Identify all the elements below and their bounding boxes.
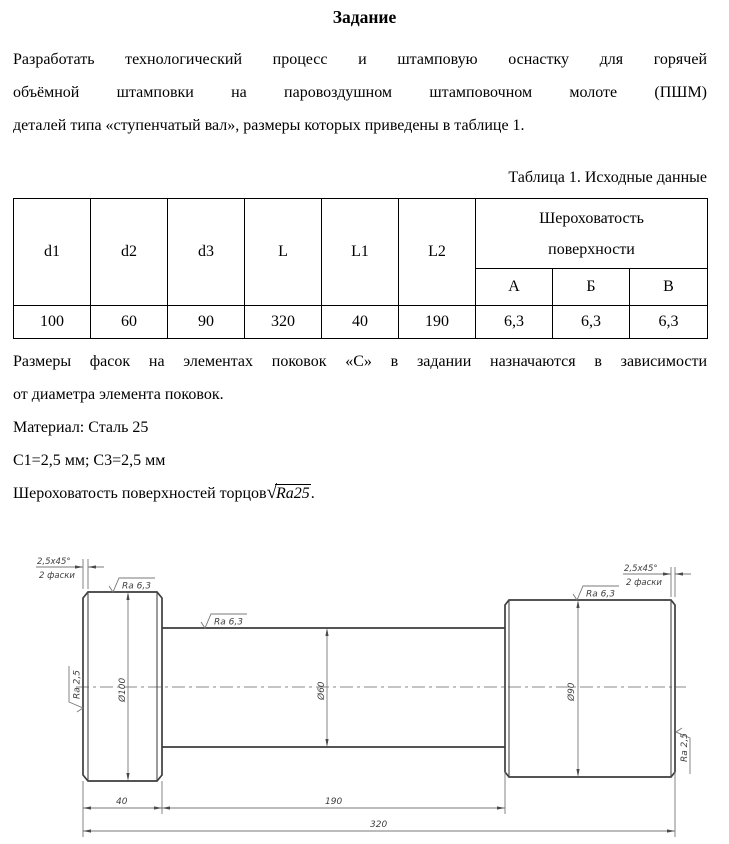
roughness-mark-ra63: Ra 6,3 — [109, 578, 155, 592]
input-data-table: d1 d2 d3 L L1 L2 Шероховатость поверхнос… — [13, 198, 708, 339]
document-page: Задание Разработать технологический проц… — [0, 0, 729, 844]
sub-header-V: В — [630, 269, 708, 306]
intro-line: Разработать технологический процесс и шт… — [13, 43, 707, 76]
value-L: 320 — [245, 306, 322, 339]
roughness-formula: Шероховатость поверхностей торцов√Ra25. — [13, 477, 713, 510]
page-title: Задание — [0, 6, 729, 28]
value-ra-v: 6,3 — [630, 306, 708, 339]
table-caption: Таблица 1. Исходные данные — [13, 167, 707, 189]
dim-diameter-d1: Ø100 — [117, 592, 130, 781]
svg-text:40: 40 — [116, 797, 128, 807]
sub-header-A: А — [476, 269, 553, 306]
intro-line: деталей типа «ступенчатый вал», размеры … — [13, 109, 707, 142]
svg-text:Ø90: Ø90 — [566, 682, 577, 702]
chamfer-note: Размеры фасок на элементах поковок «С» в… — [13, 345, 707, 378]
dim-length-total: 320 — [83, 820, 675, 833]
dim-diameter-d2: Ø60 — [316, 628, 329, 747]
notes-block: Размеры фасок на элементах поковок «С» в… — [13, 345, 713, 510]
col-header-L2: L2 — [399, 199, 476, 306]
material-note: Материал: Сталь 25 — [13, 411, 713, 444]
shaft-outline — [83, 592, 675, 781]
svg-text:2 фаски: 2 фаски — [626, 578, 662, 588]
value-ra-b: 6,3 — [553, 306, 630, 339]
chamfer-values-note: С1=2,5 мм; С3=2,5 мм — [13, 444, 713, 477]
intro-paragraph: Разработать технологический процесс и шт… — [13, 43, 707, 142]
col-header-d2: d2 — [91, 199, 168, 306]
dim-diameter-d3: Ø90 — [566, 600, 580, 777]
col-header-L: L — [245, 199, 322, 306]
svg-text:Ra 6,3: Ra 6,3 — [122, 582, 151, 592]
sub-header-B: Б — [553, 269, 630, 306]
value-d3: 90 — [168, 306, 245, 339]
svg-text:Ø100: Ø100 — [117, 677, 128, 703]
radicand: Ra25 — [275, 484, 311, 502]
svg-text:Ra 2,5: Ra 2,5 — [680, 733, 690, 762]
table-row: 100 60 90 320 40 190 6,3 6,3 6,3 — [14, 306, 708, 339]
dim-length-l2: 190 — [162, 797, 505, 810]
intro-line: объёмной штамповки на паровоздушном штам… — [13, 76, 707, 109]
roughness-mark-ra25-left: Ra 2,5 — [69, 666, 83, 712]
value-L2: 190 — [399, 306, 476, 339]
svg-text:320: 320 — [370, 820, 387, 830]
group-header-roughness: Шероховатость поверхности — [476, 199, 708, 269]
col-header-d1: d1 — [14, 199, 91, 306]
svg-text:Ø60: Ø60 — [316, 681, 327, 701]
svg-text:Ra 6,3: Ra 6,3 — [214, 618, 243, 628]
value-d1: 100 — [14, 306, 91, 339]
input-data-table-wrap: d1 d2 d3 L L1 L2 Шероховатость поверхнос… — [13, 198, 709, 339]
chamfer-callout-left: 2,5x45° 2 фаски — [36, 557, 104, 589]
svg-text:2,5x45°: 2,5x45° — [37, 557, 71, 567]
dim-length-l1: 40 — [83, 797, 162, 810]
value-ra-a: 6,3 — [476, 306, 553, 339]
roughness-mark-ra63: Ra 6,3 — [201, 614, 247, 628]
svg-text:2,5x45°: 2,5x45° — [624, 564, 658, 574]
svg-text:Ra 6,3: Ra 6,3 — [586, 590, 615, 600]
col-header-L1: L1 — [322, 199, 399, 306]
chamfer-note: от диаметра элемента поковок. — [13, 378, 713, 411]
value-d2: 60 — [91, 306, 168, 339]
chamfer-callout-right: 2,5x45° 2 фаски — [623, 564, 691, 597]
col-header-d3: d3 — [168, 199, 245, 306]
svg-text:2 фаски: 2 фаски — [39, 571, 75, 581]
shaft-drawing: Ø100 Ø60 Ø90 Ra 6,3 Ra 6,3 Ra 6,3 — [0, 540, 729, 844]
roughness-mark-ra63: Ra 6,3 — [573, 586, 619, 600]
roughness-mark-ra25-right: Ra 2,5 — [676, 728, 690, 774]
svg-text:190: 190 — [325, 797, 342, 807]
svg-text:Ra 2,5: Ra 2,5 — [73, 670, 83, 699]
value-L1: 40 — [322, 306, 399, 339]
